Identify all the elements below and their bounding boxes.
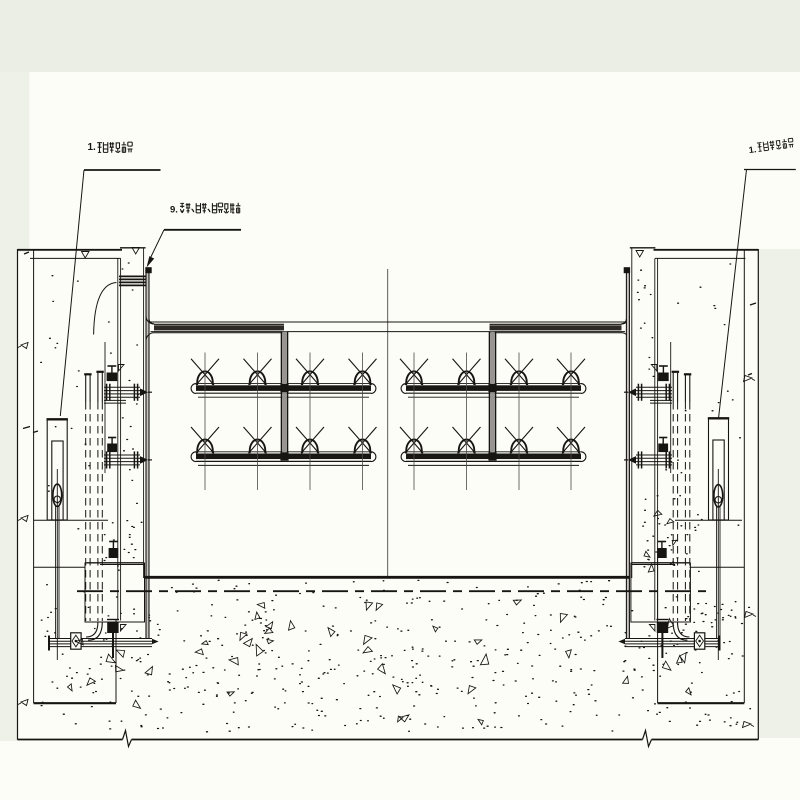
svg-text:9.: 9. <box>170 205 178 216</box>
svg-text:1.: 1. <box>748 144 757 155</box>
svg-text:1.: 1. <box>88 142 97 153</box>
